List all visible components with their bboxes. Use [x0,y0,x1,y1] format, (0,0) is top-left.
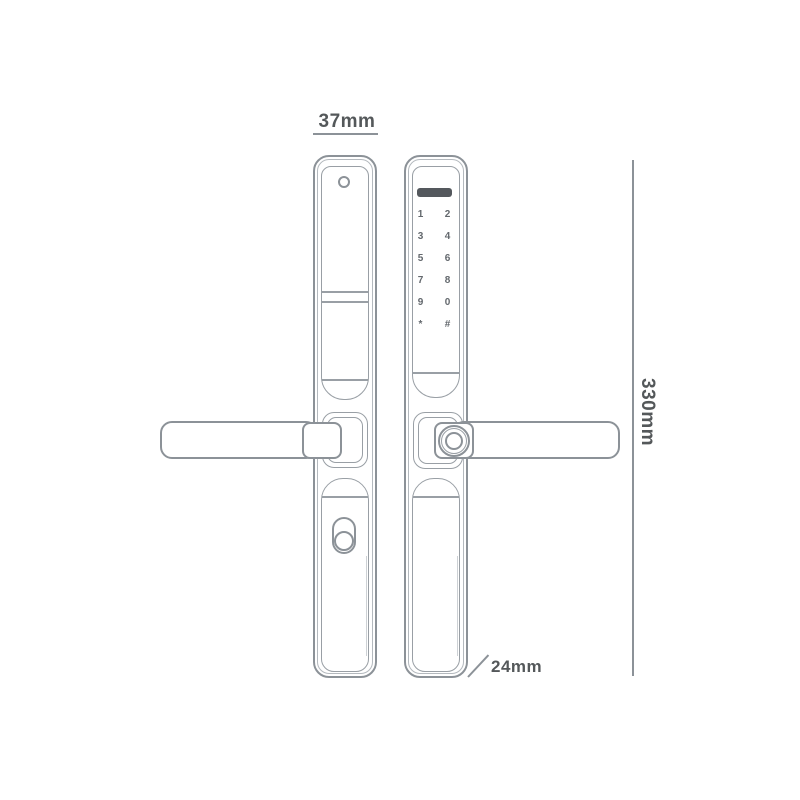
key-hash[interactable]: # [434,313,461,335]
back-handle-hub[interactable] [302,422,342,459]
front-plate-lower-panel-divider [413,496,459,498]
back-plate-lower-panel-shade-line [366,556,367,656]
key-6[interactable]: 6 [434,247,461,269]
keypad: 1 2 3 4 5 6 7 8 9 0 * # [407,203,461,335]
display-bar [417,188,452,197]
keypad-panel-divider [413,372,459,374]
key-5[interactable]: 5 [407,247,434,269]
back-plate-upper-panel-divider-2 [322,301,368,303]
width-dimension-label: 37mm [312,111,382,133]
front-plate-lower-panel [412,478,460,672]
fingerprint-sensor[interactable] [445,432,463,450]
depth-dimension-leader-line [467,654,489,677]
lock-dimension-diagram: 37mm 330mm 24mm 1 2 3 4 5 6 7 8 9 0 * # [0,0,800,800]
back-plate-lower-panel [321,478,369,672]
back-plate-upper-panel [321,166,369,400]
key-2[interactable]: 2 [434,203,461,225]
front-plate-lower-panel-shade-line [457,556,458,656]
height-dimension-line [632,160,634,676]
key-9[interactable]: 9 [407,291,434,313]
key-8[interactable]: 8 [434,269,461,291]
key-0[interactable]: 0 [434,291,461,313]
key-7[interactable]: 7 [407,269,434,291]
indicator-dot [338,176,350,188]
back-plate-lower-panel-divider [322,496,368,498]
key-1[interactable]: 1 [407,203,434,225]
key-3[interactable]: 3 [407,225,434,247]
depth-dimension-label: 24mm [491,657,542,677]
thumbturn-knob[interactable] [334,531,354,551]
front-handle-lever[interactable] [452,421,620,459]
key-star[interactable]: * [407,313,434,335]
height-dimension-label: 330mm [636,376,658,448]
width-dimension-line [313,133,378,135]
back-plate-upper-panel-divider-3 [322,379,368,381]
key-4[interactable]: 4 [434,225,461,247]
back-handle-lever[interactable] [160,421,318,459]
back-plate-upper-panel-divider-1 [322,291,368,293]
